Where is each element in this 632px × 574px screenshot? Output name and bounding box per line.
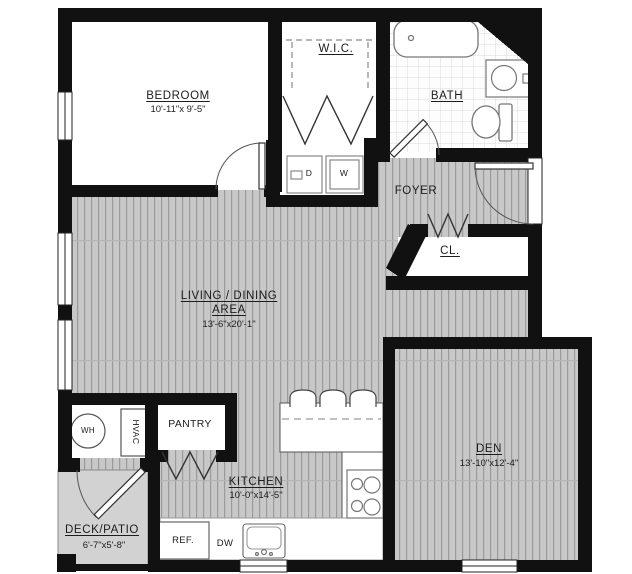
pantry-label: PANTRY — [168, 418, 211, 430]
floor-plan-drawing — [0, 0, 632, 574]
kitchen-dims: 10'-0"x14'-5" — [229, 490, 282, 501]
floor-plan: BEDROOM 10'-11"x 9'-5" W.I.C. BATH FOYER… — [0, 0, 632, 574]
living-dims: 13'-6"x20'-1" — [202, 319, 255, 330]
closet-label: CL. — [440, 245, 460, 257]
refrigerator-label: REF. — [172, 535, 194, 546]
stove — [347, 470, 383, 518]
living-window-1 — [58, 233, 72, 305]
kitchen-sink-window — [240, 560, 287, 572]
den-dims: 13'-10"x12'-4" — [460, 458, 518, 469]
den-label: DEN — [476, 443, 502, 455]
bath-vanity-sink — [486, 60, 530, 97]
bar-stools — [290, 390, 376, 407]
bathtub — [394, 20, 478, 57]
deck-dims: 6'-7"x5'-8" — [83, 540, 126, 551]
water-heater-label: WH — [81, 426, 95, 435]
foyer-label: FOYER — [395, 185, 438, 197]
kitchen-sink — [243, 524, 285, 558]
deck-floor — [58, 470, 148, 566]
hvac-label: HVAC — [131, 420, 141, 445]
living-window-2 — [58, 320, 72, 390]
dishwasher-label: DW — [217, 538, 233, 549]
bedroom-label: BEDROOM — [146, 90, 210, 102]
den-window — [462, 560, 517, 572]
dryer-label: D — [306, 168, 312, 178]
deck-label: DECK/PATIO — [65, 524, 139, 536]
wic-label: W.I.C. — [319, 43, 354, 55]
kitchen-label: KITCHEN — [229, 476, 284, 488]
living-label-line1: LIVING / DINING — [181, 290, 278, 302]
washer-label: W — [340, 168, 348, 178]
bedroom-window — [58, 92, 72, 140]
bedroom-door — [216, 143, 265, 189]
toilet — [472, 104, 512, 141]
living-label-line2: AREA — [212, 304, 246, 316]
wic-bifold-doors — [283, 96, 373, 144]
bath-label: BATH — [431, 90, 463, 102]
dryer-unit — [287, 156, 322, 193]
bedroom-dims: 10'-11"x 9'-5" — [150, 104, 205, 115]
